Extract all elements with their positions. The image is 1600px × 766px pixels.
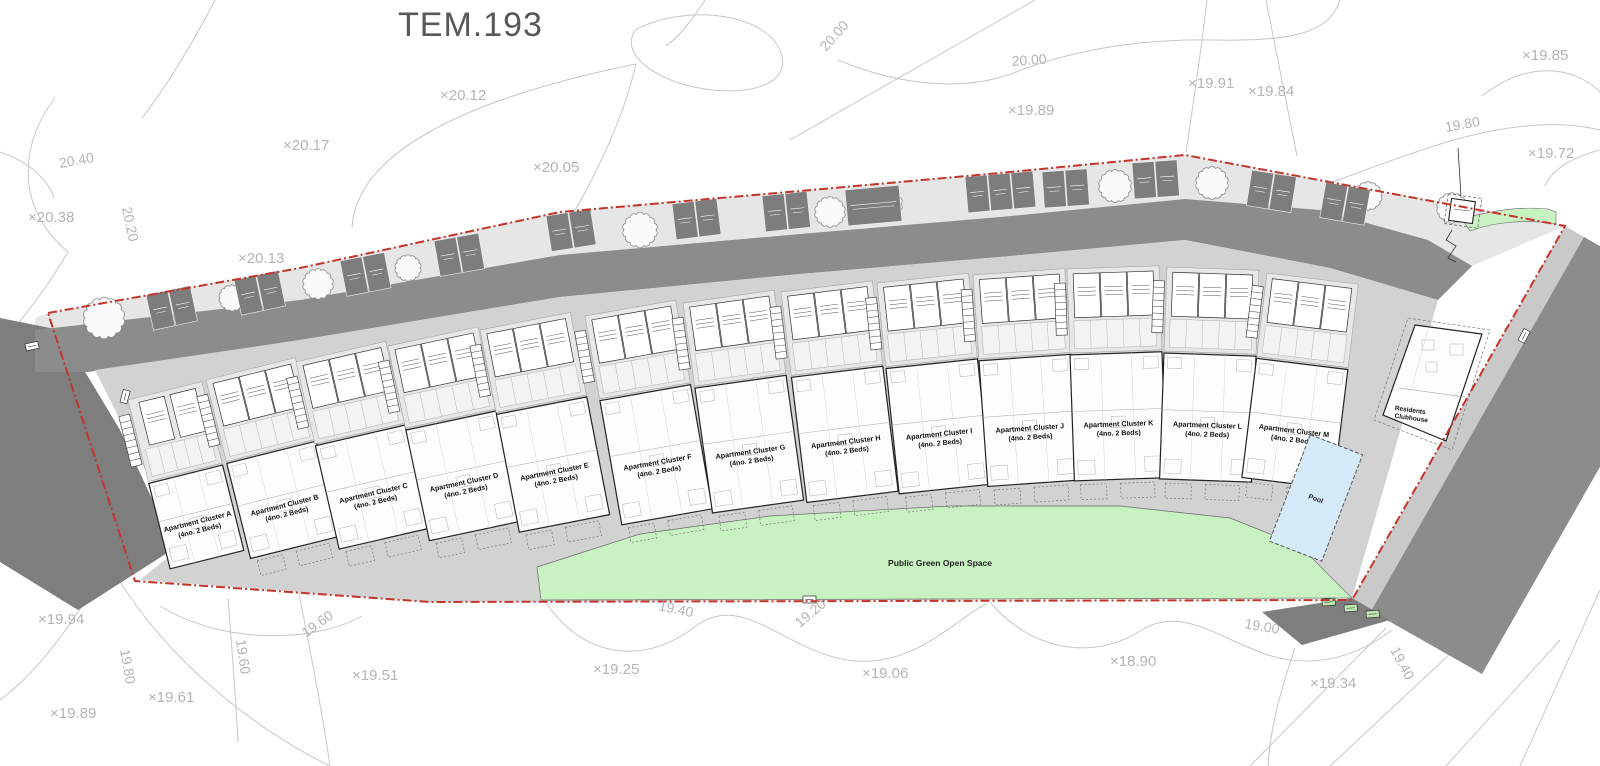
stair-flight bbox=[1054, 283, 1067, 335]
spot-level: ×19.72 bbox=[1528, 145, 1574, 162]
contour-label: 20.20 bbox=[119, 205, 142, 243]
contour-label: 19.60 bbox=[233, 638, 254, 675]
tree-symbol bbox=[623, 212, 657, 247]
spot-level: ×20.13 bbox=[238, 250, 284, 267]
contour-label: 20.00 bbox=[1011, 51, 1047, 69]
spot-level: ×19.34 bbox=[1310, 675, 1356, 692]
spot-level: ×20.38 bbox=[28, 209, 74, 226]
stair-flight bbox=[1152, 281, 1165, 333]
contour-label: 20.40 bbox=[58, 149, 95, 171]
cluster-parking-court bbox=[982, 321, 1066, 355]
spot-level: ×19.91 bbox=[1188, 75, 1234, 92]
site-plan-sheet: TEM.193 bbox=[0, 0, 1600, 766]
spot-level: ×19.25 bbox=[593, 661, 639, 678]
contour-label: 20.00 bbox=[816, 17, 851, 54]
tree-symbol bbox=[1196, 167, 1228, 200]
spot-level: ×19.85 bbox=[1522, 47, 1568, 64]
tree-symbol bbox=[1099, 170, 1131, 203]
contour-label: 19.60 bbox=[298, 607, 336, 641]
spot-level: ×18.90 bbox=[1110, 653, 1156, 670]
spot-level: ×19.84 bbox=[1248, 83, 1294, 100]
spot-level: ×20.05 bbox=[533, 159, 579, 176]
visitor-parking-group bbox=[965, 171, 1036, 213]
visitor-parking-group bbox=[845, 185, 902, 226]
tree-symbol bbox=[303, 269, 333, 300]
level-marker-chip bbox=[1366, 610, 1379, 618]
spot-level: ×19.94 bbox=[38, 611, 84, 628]
spot-level: ×20.17 bbox=[283, 137, 329, 154]
contour-label: 19.80 bbox=[117, 648, 139, 685]
apartment-cluster-l: Apartment Cluster L(4no. 2 Beds) bbox=[1146, 267, 1259, 502]
tree-symbol bbox=[815, 197, 845, 228]
site-plan-drawing: Apartment Cluster A(4no. 2 Beds)Apartmen… bbox=[0, 0, 1600, 766]
cluster-parking-court bbox=[1169, 319, 1252, 350]
contour-label: 19.40 bbox=[1387, 644, 1418, 683]
spot-level: ×19.61 bbox=[148, 689, 194, 706]
tree-symbol bbox=[395, 255, 421, 282]
spot-level: ×20.12 bbox=[440, 87, 486, 104]
level-marker-chip bbox=[1344, 604, 1357, 612]
green-space-label: Public Green Open Space bbox=[888, 558, 992, 568]
spot-level: ×19.06 bbox=[862, 665, 908, 682]
spot-level: ×19.51 bbox=[352, 667, 398, 684]
spot-level: ×19.89 bbox=[50, 705, 96, 722]
cluster-parking-court bbox=[1074, 318, 1157, 349]
contour-label: 19.80 bbox=[1444, 113, 1481, 135]
spot-level: ×19.89 bbox=[1008, 102, 1054, 119]
